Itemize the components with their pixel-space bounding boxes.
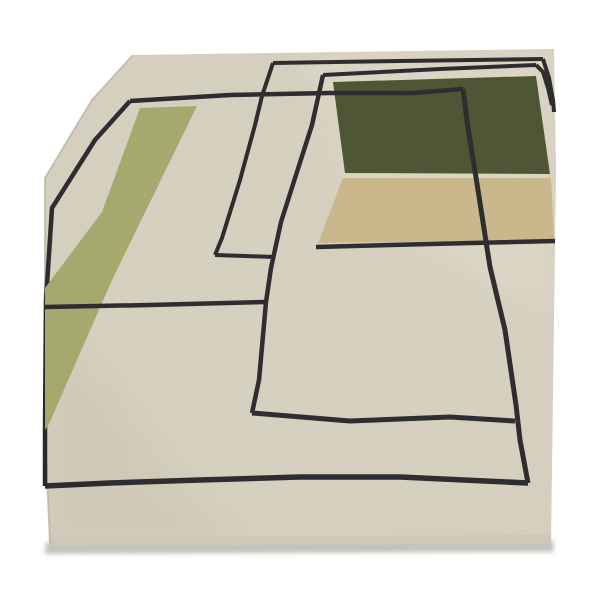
- wool-texture-overlay: [0, 0, 600, 600]
- rug-photo-canvas: [0, 0, 600, 600]
- rug-product-photo: [0, 0, 600, 600]
